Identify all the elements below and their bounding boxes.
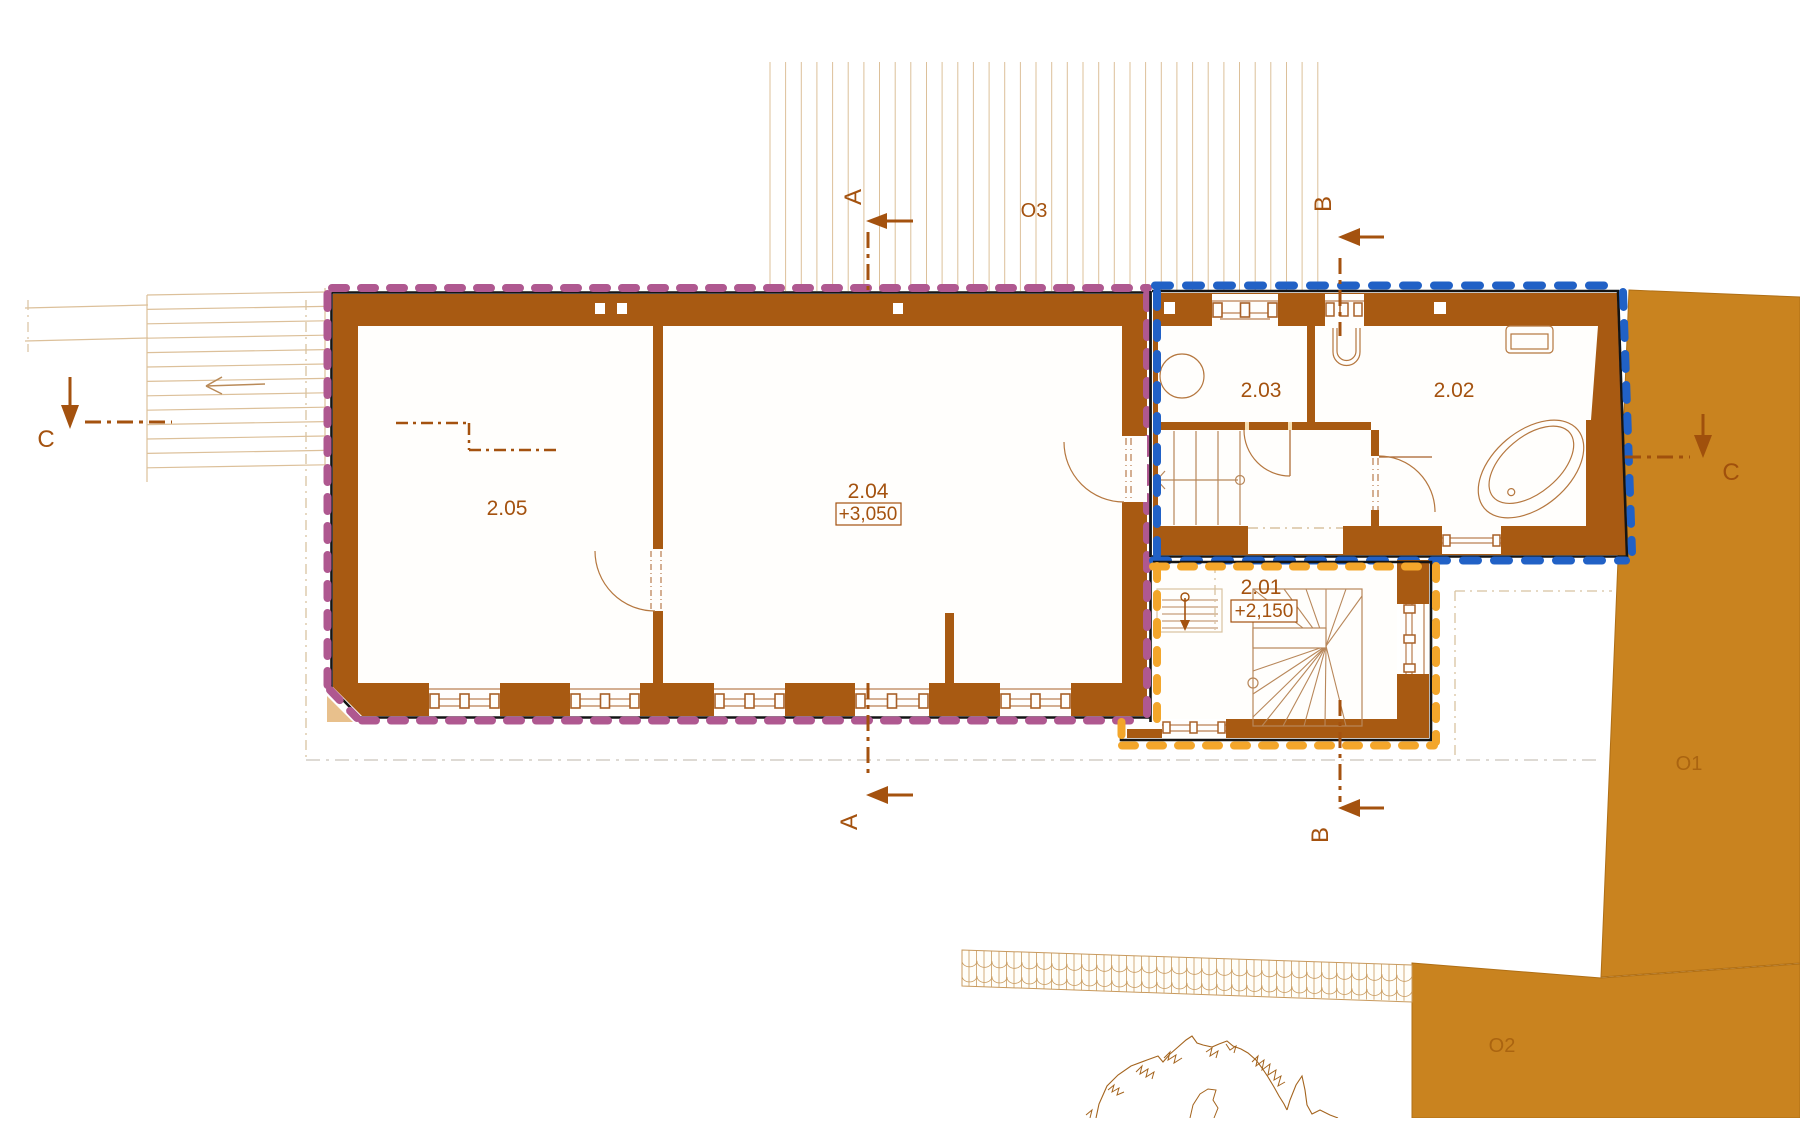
svg-text:B: B <box>1310 196 1337 212</box>
svg-text:C: C <box>1722 459 1739 486</box>
svg-text:2.04: 2.04 <box>848 480 889 503</box>
svg-text:O3: O3 <box>1021 200 1048 222</box>
svg-text:+2,150: +2,150 <box>1235 601 1294 622</box>
svg-text:2.03: 2.03 <box>1241 379 1282 402</box>
svg-text:O2: O2 <box>1489 1035 1516 1057</box>
svg-text:A: A <box>836 814 863 830</box>
svg-text:2.05: 2.05 <box>487 497 528 520</box>
svg-text:O1: O1 <box>1676 753 1703 775</box>
svg-text:A: A <box>840 189 867 205</box>
svg-text:B: B <box>1307 827 1334 843</box>
svg-text:+3,050: +3,050 <box>839 504 898 525</box>
svg-text:C: C <box>37 426 54 453</box>
svg-text:2.01: 2.01 <box>1241 576 1282 599</box>
svg-text:2.02: 2.02 <box>1434 379 1475 402</box>
